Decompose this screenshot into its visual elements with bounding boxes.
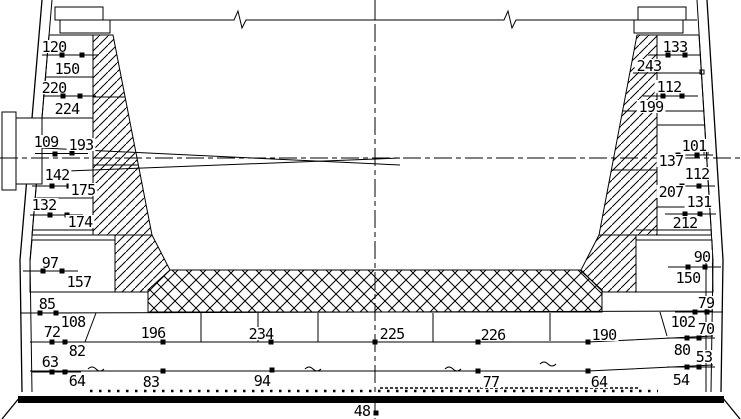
measurement-label: 120 (42, 38, 67, 56)
measurement-point (697, 184, 702, 189)
left-wall-hatch (93, 35, 152, 235)
measurement-label: 80 (674, 341, 691, 359)
measurement-label: 142 (45, 166, 70, 184)
measurement-point (53, 152, 58, 157)
drawing-canvas: 1201502202241091931421751321749715785108… (0, 0, 741, 419)
bottom-plate (18, 396, 724, 403)
measurement-label: 112 (685, 165, 710, 183)
measurement-label: 109 (34, 133, 59, 151)
measurement-label: 101 (682, 137, 707, 155)
measurement-label: 90 (694, 248, 711, 266)
measurement-point (374, 411, 379, 416)
measurement-point (270, 368, 275, 373)
measurement-point (586, 340, 591, 345)
measurement-label: 207 (659, 183, 684, 201)
measurement-label: 97 (42, 254, 58, 272)
measurement-label: 193 (69, 136, 94, 154)
measurement-label: 175 (71, 181, 96, 199)
measurement-label: 94 (254, 372, 271, 390)
measurement-label: 83 (143, 373, 159, 391)
measurement-point (63, 370, 68, 375)
top-rim-line (103, 11, 697, 28)
measurement-point (63, 340, 68, 345)
measurement-label: 132 (32, 196, 57, 214)
measurement-label: 199 (639, 98, 664, 116)
measurement-label: 220 (42, 79, 67, 97)
measurement-label: 212 (673, 214, 698, 232)
measurement-label: 150 (676, 269, 701, 287)
measurement-label: 174 (68, 213, 93, 231)
measurement-point (80, 53, 85, 58)
measurement-label: 137 (659, 152, 684, 170)
measurement-label: 243 (637, 57, 662, 75)
measurement-label: 131 (687, 193, 712, 211)
measurement-label: 190 (592, 326, 617, 344)
measurement-label: 72 (44, 323, 60, 341)
measurement-point (586, 369, 591, 374)
measurement-label: 63 (42, 353, 58, 371)
measurement-point (78, 94, 83, 99)
measurement-label: 64 (591, 373, 608, 391)
measurement-label: 77 (483, 373, 499, 391)
measurement-label: 64 (69, 372, 86, 390)
measurement-label: 53 (696, 348, 712, 366)
measurement-label: 112 (657, 78, 682, 96)
measurement-label: 157 (67, 273, 92, 291)
measurement-label: 225 (380, 325, 405, 343)
measurement-point (476, 369, 481, 374)
measurement-point (685, 365, 690, 370)
measurement-label: 196 (141, 324, 166, 342)
measurement-label: 226 (481, 326, 506, 344)
measurement-point (161, 369, 166, 374)
furnace-lining-cross-section: 1201502202241091931421751321749715785108… (0, 0, 741, 419)
measurement-label: 133 (663, 38, 688, 56)
measurement-label: 82 (69, 342, 85, 360)
measurement-label: 150 (55, 60, 80, 78)
measurement-point (698, 212, 703, 217)
measurement-point (60, 269, 65, 274)
measurement-point (50, 184, 55, 189)
measurement-label: 108 (61, 313, 86, 331)
measurement-label: 54 (673, 371, 690, 389)
measurement-label: 79 (698, 294, 715, 312)
measurement-point (373, 340, 378, 345)
measurement-label: 224 (55, 100, 80, 118)
measurement-label: 70 (698, 320, 715, 338)
measurement-label: 48 (354, 402, 371, 419)
measurement-label: 102 (671, 313, 696, 331)
measurement-label: 85 (39, 295, 55, 313)
measurement-label: 234 (249, 325, 274, 343)
measurement-point (685, 336, 690, 341)
